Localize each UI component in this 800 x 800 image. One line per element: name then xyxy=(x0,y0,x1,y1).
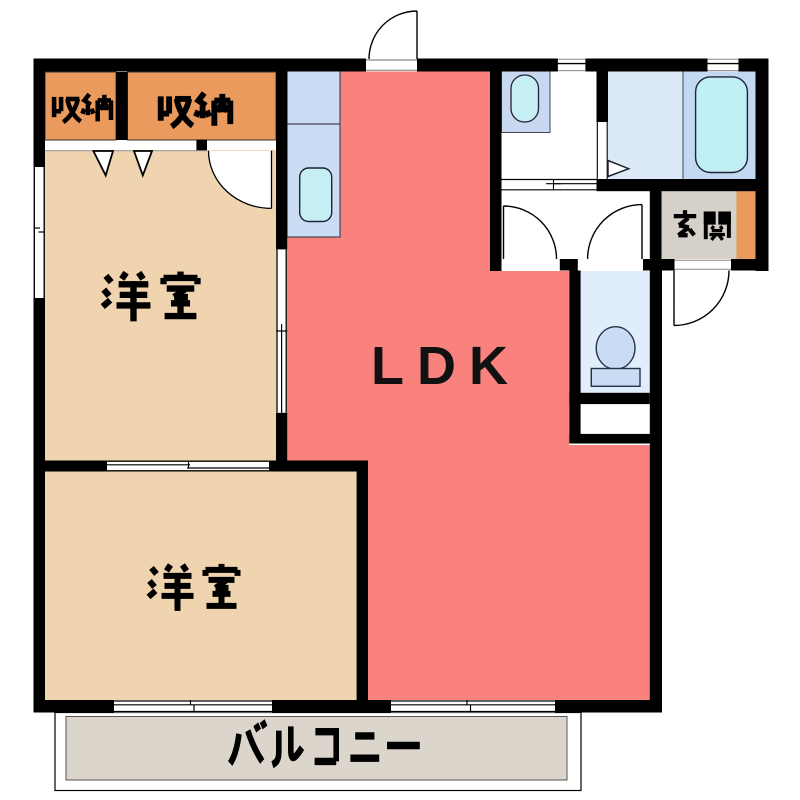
svg-text:LDK: LDK xyxy=(371,336,521,396)
